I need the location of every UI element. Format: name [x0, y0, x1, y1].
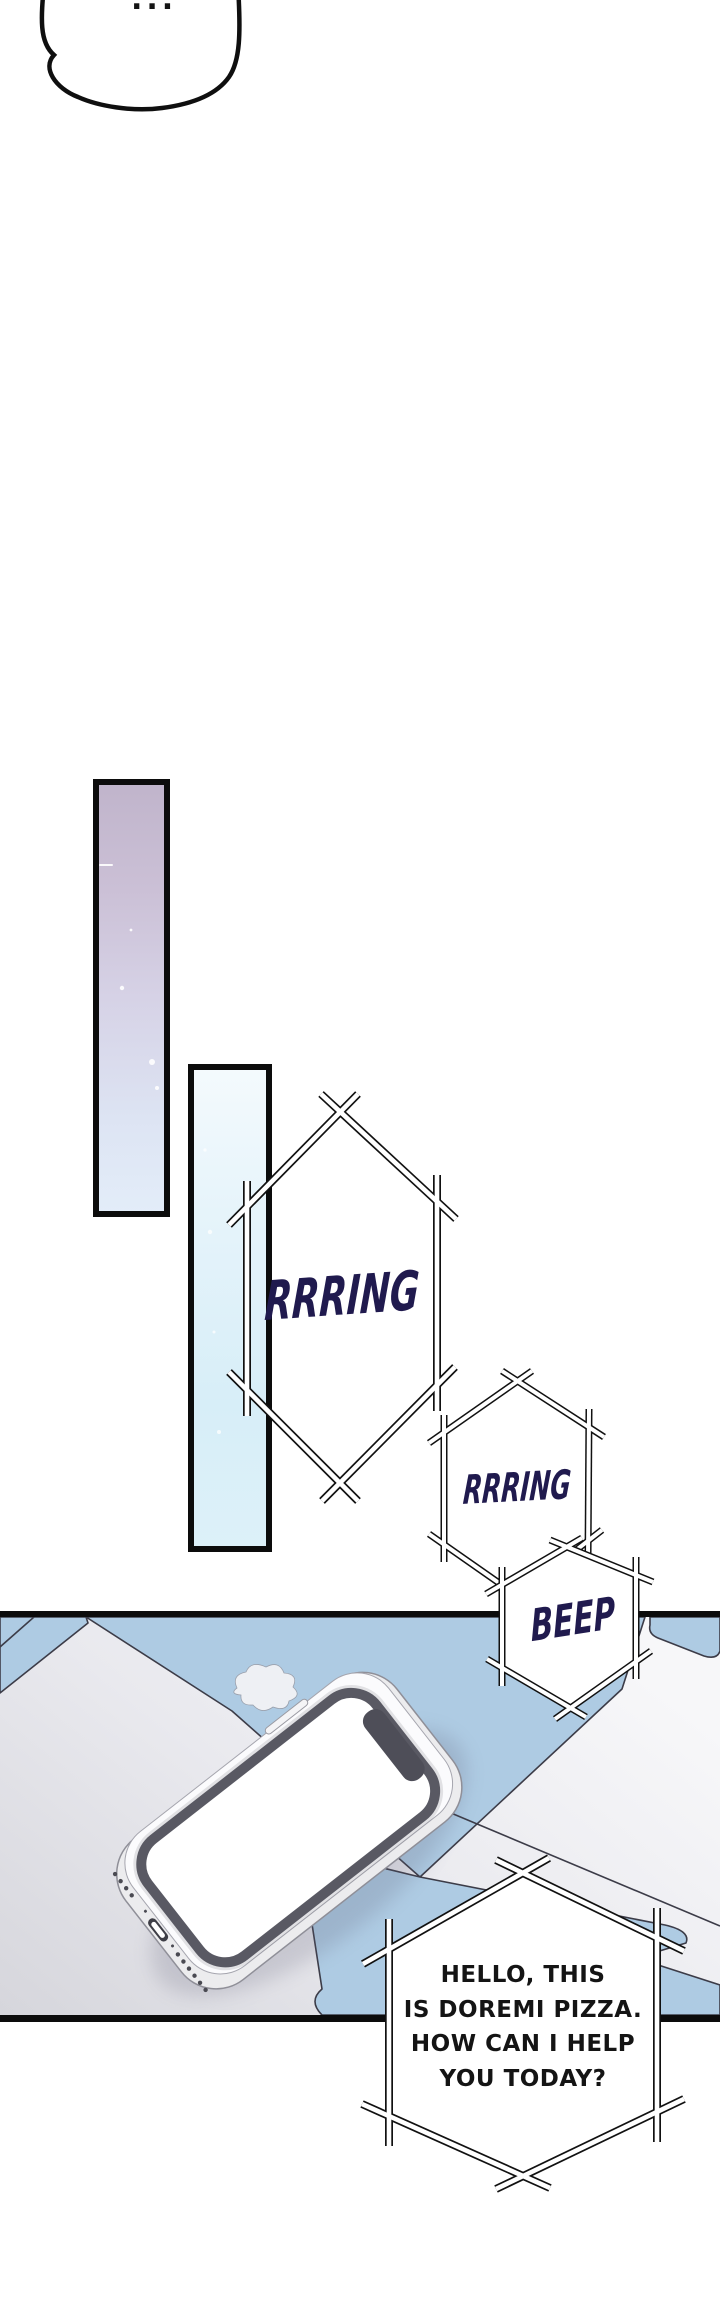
vertical-bar-blue [191, 1067, 269, 1549]
vertical-bar-purple [96, 782, 167, 1214]
dialogue-line-1: HELLO, THIS [373, 1958, 673, 1993]
comic-art-layer: ... [0, 0, 720, 2299]
sfx-text-ring-large: RRRING [263, 1259, 421, 1333]
dialogue-line-4: YOU TODAY? [373, 2062, 673, 2097]
sfx-text-ring-small: RRRING [462, 1462, 573, 1514]
dialogue-line-2: IS DOREMI PIZZA. [373, 1993, 673, 2028]
ellipsis-text: ... [131, 0, 177, 17]
comic-page: ... [0, 0, 720, 2299]
dialogue-line-3: HOW CAN I HELP [373, 2027, 673, 2062]
offscreen-speech-bubble: ... [42, 0, 240, 109]
dialogue-text: HELLO, THIS IS DOREMI PIZZA. HOW CAN I H… [373, 1958, 673, 2096]
